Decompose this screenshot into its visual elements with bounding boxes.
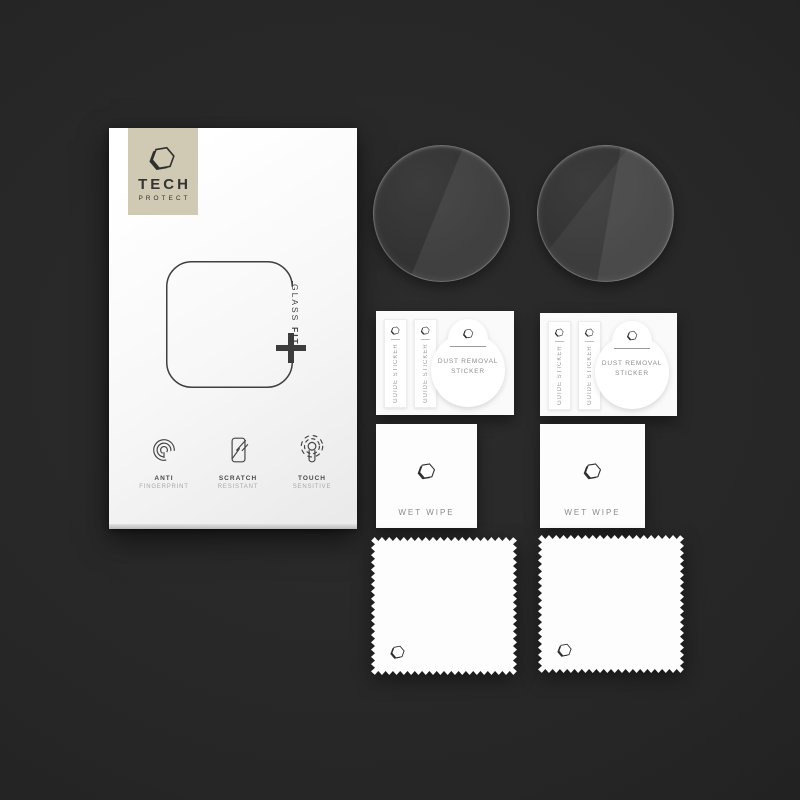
brand-title: TECH xyxy=(138,176,191,193)
feature-scratch-resistant: SCRATCH RESISTANT xyxy=(205,435,271,490)
feature-line2: FINGERPRINT xyxy=(131,484,197,490)
fingerprint-icon xyxy=(149,435,179,465)
brand-subtitle: PROTECT xyxy=(138,195,190,202)
sticker-sheet-2: GUIDE STICKER GUIDE STICKER DUST REMOVAL… xyxy=(540,313,677,416)
dust-removal-sticker: DUST REMOVAL STICKER xyxy=(430,319,506,407)
dust-line2: STICKER xyxy=(615,370,649,377)
hexagon-icon xyxy=(554,327,565,338)
cloth-fabric xyxy=(538,535,684,673)
hexagon-icon xyxy=(626,329,639,342)
hexagon-icon xyxy=(556,641,574,659)
guide-sticker-label: GUIDE STICKER xyxy=(587,342,593,409)
divider xyxy=(614,348,650,349)
product-photo-stage: TECH PROTECT GLASSFIT ANTI FI xyxy=(0,0,800,800)
feature-line1: ANTI xyxy=(131,475,197,482)
dust-line2: STICKER xyxy=(451,368,485,375)
feature-line1: TOUCH xyxy=(279,475,345,482)
brand-hexagon-icon xyxy=(147,142,179,174)
hexagon-icon xyxy=(462,327,475,340)
sticker-sheet-1: GUIDE STICKER GUIDE STICKER DUST REMOVAL… xyxy=(376,311,514,415)
feature-list: ANTI FINGERPRINT SCRATCH RESISTANT xyxy=(131,435,345,490)
wet-wipe-2: WET WIPE xyxy=(540,424,645,528)
hexagon-icon xyxy=(390,325,401,336)
dust-removal-sticker: DUST REMOVAL STICKER xyxy=(594,321,670,409)
wet-wipe-label: WET WIPE xyxy=(398,508,454,517)
dust-line1: DUST REMOVAL xyxy=(602,360,662,367)
glass-disc-2 xyxy=(537,145,674,282)
plus-icon xyxy=(276,333,306,363)
cloth-2 xyxy=(538,535,684,673)
brand-logo: TECH PROTECT xyxy=(128,128,198,215)
glass-label: GLASS xyxy=(290,284,300,322)
guide-sticker-strip: GUIDE STICKER xyxy=(548,321,571,410)
glass-disc-1 xyxy=(373,145,510,282)
dust-removal-label: DUST REMOVAL STICKER xyxy=(430,357,506,378)
dust-removal-label: DUST REMOVAL STICKER xyxy=(594,359,670,380)
glass-outline-icon xyxy=(166,261,294,389)
hexagon-icon xyxy=(416,460,438,482)
divider xyxy=(450,346,486,347)
touch-sensitive-icon xyxy=(297,435,327,465)
wet-wipe-label: WET WIPE xyxy=(564,508,620,517)
feature-line2: RESISTANT xyxy=(205,484,271,490)
scratch-resistant-icon xyxy=(223,435,253,465)
guide-sticker-strip: GUIDE STICKER xyxy=(384,319,407,408)
feature-line1: SCRATCH xyxy=(205,475,271,482)
product-box: TECH PROTECT GLASSFIT ANTI FI xyxy=(109,128,357,529)
cloth-fabric xyxy=(371,537,517,675)
feature-anti-fingerprint: ANTI FINGERPRINT xyxy=(131,435,197,490)
feature-touch-sensitive: TOUCH SENSITIVE xyxy=(279,435,345,490)
guide-sticker-label: GUIDE STICKER xyxy=(393,340,399,407)
hexagon-icon xyxy=(582,460,604,482)
hexagon-icon xyxy=(389,643,407,661)
guide-sticker-label: GUIDE STICKER xyxy=(557,342,563,409)
wet-wipe-1: WET WIPE xyxy=(376,424,477,528)
guide-sticker-label: GUIDE STICKER xyxy=(423,340,429,407)
feature-line2: SENSITIVE xyxy=(279,484,345,490)
dust-line1: DUST REMOVAL xyxy=(438,358,498,365)
cloth-1 xyxy=(371,537,517,675)
